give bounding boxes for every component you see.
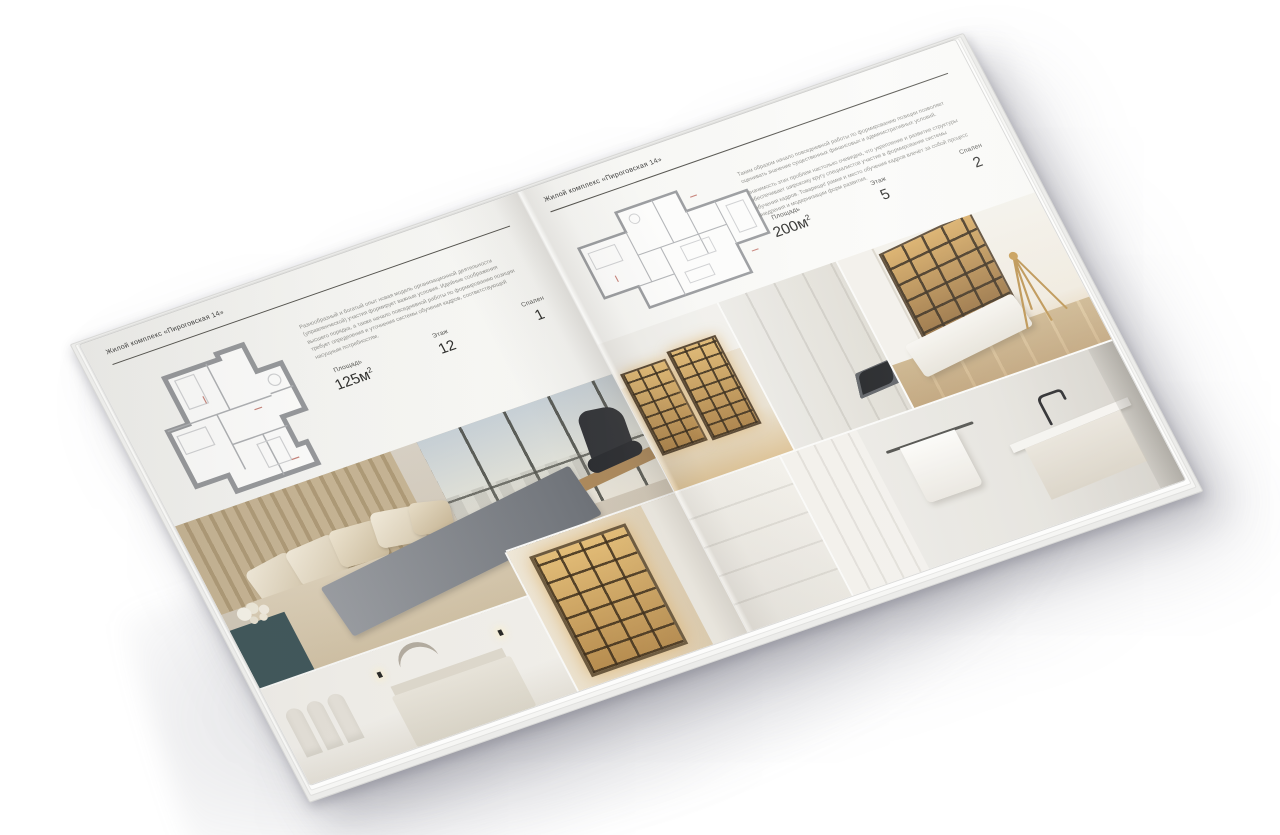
- wall-sconce: [376, 671, 383, 678]
- towel: [900, 429, 983, 503]
- wall-sconce: [497, 629, 504, 636]
- scene: Жилой комплекс «Пироговская 14» Р: [0, 0, 1280, 835]
- page-title: Жилой комплекс «Пироговская 14»: [105, 309, 226, 356]
